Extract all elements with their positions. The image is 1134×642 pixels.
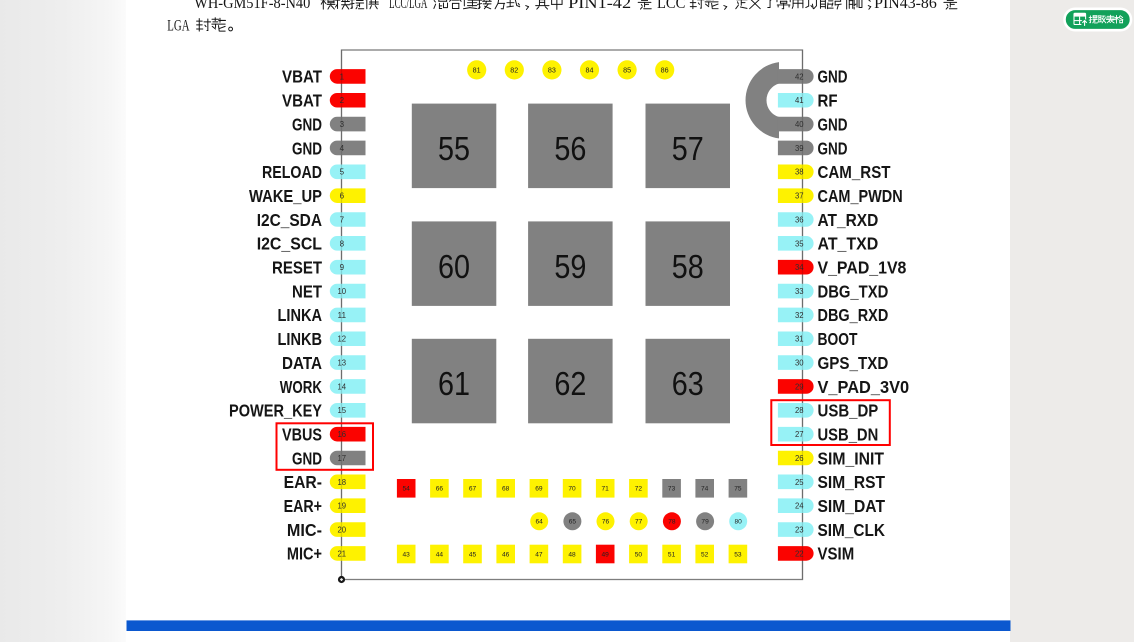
svg-text:GND: GND bbox=[818, 138, 848, 158]
svg-text:65: 65 bbox=[569, 519, 577, 526]
svg-text:DBG_RXD: DBG_RXD bbox=[818, 305, 889, 325]
svg-text:PIN1-42: PIN1-42 bbox=[568, 0, 631, 12]
svg-text:GND: GND bbox=[292, 448, 322, 468]
svg-text:79: 79 bbox=[701, 519, 709, 526]
svg-text:81: 81 bbox=[473, 67, 481, 74]
svg-text:57: 57 bbox=[672, 130, 704, 167]
svg-text:83: 83 bbox=[548, 67, 556, 74]
svg-text:PIN43-86: PIN43-86 bbox=[874, 0, 937, 12]
svg-text:LCC/LGA: LCC/LGA bbox=[389, 0, 428, 12]
svg-text:EAR-: EAR- bbox=[284, 472, 323, 492]
svg-text:78: 78 bbox=[668, 519, 676, 526]
svg-text:CAM_RST: CAM_RST bbox=[818, 162, 891, 182]
svg-text:47: 47 bbox=[535, 551, 543, 558]
svg-text:LINKB: LINKB bbox=[278, 329, 323, 349]
svg-text:SIM_INIT: SIM_INIT bbox=[818, 448, 885, 468]
svg-text:DBG_TXD: DBG_TXD bbox=[818, 281, 889, 301]
svg-text:GPS_TXD: GPS_TXD bbox=[818, 353, 889, 373]
svg-text:WH-GM51F-8-N40: WH-GM51F-8-N40 bbox=[194, 0, 310, 12]
svg-text:73: 73 bbox=[668, 486, 676, 493]
svg-text:62: 62 bbox=[554, 365, 586, 402]
svg-text:86: 86 bbox=[661, 67, 669, 74]
svg-text:WAKE_UP: WAKE_UP bbox=[249, 186, 322, 206]
svg-text:V_PAD_1V8: V_PAD_1V8 bbox=[818, 258, 907, 278]
svg-text:84: 84 bbox=[586, 67, 594, 74]
svg-text:43: 43 bbox=[403, 551, 411, 558]
svg-text:69: 69 bbox=[535, 486, 543, 493]
svg-text:MIC+: MIC+ bbox=[287, 544, 322, 564]
svg-text:44: 44 bbox=[436, 551, 444, 558]
svg-text:70: 70 bbox=[568, 486, 576, 493]
svg-text:59: 59 bbox=[554, 248, 586, 285]
svg-text:66: 66 bbox=[436, 486, 444, 493]
svg-text:RESET: RESET bbox=[272, 258, 322, 278]
svg-text:VBAT: VBAT bbox=[282, 91, 322, 111]
svg-text:SIM_DAT: SIM_DAT bbox=[818, 496, 886, 516]
svg-text:46: 46 bbox=[502, 551, 510, 558]
svg-text:50: 50 bbox=[635, 551, 643, 558]
svg-text:51: 51 bbox=[668, 551, 676, 558]
svg-text:V_PAD_3V0: V_PAD_3V0 bbox=[818, 377, 910, 397]
svg-text:WORK: WORK bbox=[280, 377, 322, 397]
svg-text:53: 53 bbox=[734, 551, 742, 558]
svg-text:GND: GND bbox=[818, 67, 848, 87]
svg-text:64: 64 bbox=[536, 519, 544, 526]
svg-text:63: 63 bbox=[672, 365, 704, 402]
svg-text:58: 58 bbox=[672, 248, 704, 285]
svg-text:USB_DN: USB_DN bbox=[818, 424, 879, 444]
svg-text:LGA: LGA bbox=[167, 18, 190, 35]
svg-text:EAR+: EAR+ bbox=[284, 496, 322, 516]
svg-text:68: 68 bbox=[502, 486, 510, 493]
svg-text:LCC: LCC bbox=[657, 0, 685, 12]
svg-text:VBUS: VBUS bbox=[282, 424, 322, 444]
svg-text:GND: GND bbox=[818, 114, 848, 134]
svg-text:BOOT: BOOT bbox=[818, 329, 858, 349]
svg-text:45: 45 bbox=[469, 551, 477, 558]
svg-text:POWER_KEY: POWER_KEY bbox=[229, 401, 322, 421]
svg-text:56: 56 bbox=[554, 130, 586, 167]
svg-text:52: 52 bbox=[701, 551, 709, 558]
svg-text:SIM_CLK: SIM_CLK bbox=[818, 520, 886, 540]
svg-text:VBAT: VBAT bbox=[282, 67, 322, 87]
svg-text:RF: RF bbox=[818, 91, 838, 111]
svg-text:77: 77 bbox=[635, 519, 643, 526]
svg-text:I2C_SCL: I2C_SCL bbox=[257, 234, 323, 254]
svg-text:60: 60 bbox=[438, 248, 470, 285]
svg-text:NET: NET bbox=[292, 281, 322, 301]
svg-text:48: 48 bbox=[568, 551, 576, 558]
svg-text:85: 85 bbox=[623, 67, 631, 74]
svg-text:MIC-: MIC- bbox=[287, 520, 322, 540]
svg-text:71: 71 bbox=[602, 486, 610, 493]
svg-text:74: 74 bbox=[701, 486, 709, 493]
svg-text:USB_DP: USB_DP bbox=[818, 401, 879, 421]
svg-text:SIM_RST: SIM_RST bbox=[818, 472, 886, 492]
svg-text:55: 55 bbox=[438, 130, 470, 167]
svg-text:RELOAD: RELOAD bbox=[262, 162, 322, 182]
svg-text:GND: GND bbox=[292, 138, 322, 158]
svg-text:VSIM: VSIM bbox=[818, 544, 855, 564]
svg-text:80: 80 bbox=[735, 519, 743, 526]
svg-text:CAM_PWDN: CAM_PWDN bbox=[818, 186, 903, 206]
svg-text:DATA: DATA bbox=[282, 353, 322, 373]
svg-text:I2C_SDA: I2C_SDA bbox=[257, 210, 323, 230]
svg-text:LINKA: LINKA bbox=[278, 305, 323, 325]
svg-text:67: 67 bbox=[469, 486, 477, 493]
svg-text:61: 61 bbox=[438, 365, 470, 402]
svg-text:72: 72 bbox=[635, 486, 643, 493]
svg-text:54: 54 bbox=[403, 486, 411, 493]
svg-text:49: 49 bbox=[602, 551, 610, 558]
svg-text:GND: GND bbox=[292, 114, 322, 134]
svg-text:75: 75 bbox=[734, 486, 742, 493]
svg-text:76: 76 bbox=[602, 519, 610, 526]
svg-text:AT_TXD: AT_TXD bbox=[818, 234, 879, 254]
svg-text:AT_RXD: AT_RXD bbox=[818, 210, 879, 230]
svg-text:82: 82 bbox=[510, 67, 518, 74]
